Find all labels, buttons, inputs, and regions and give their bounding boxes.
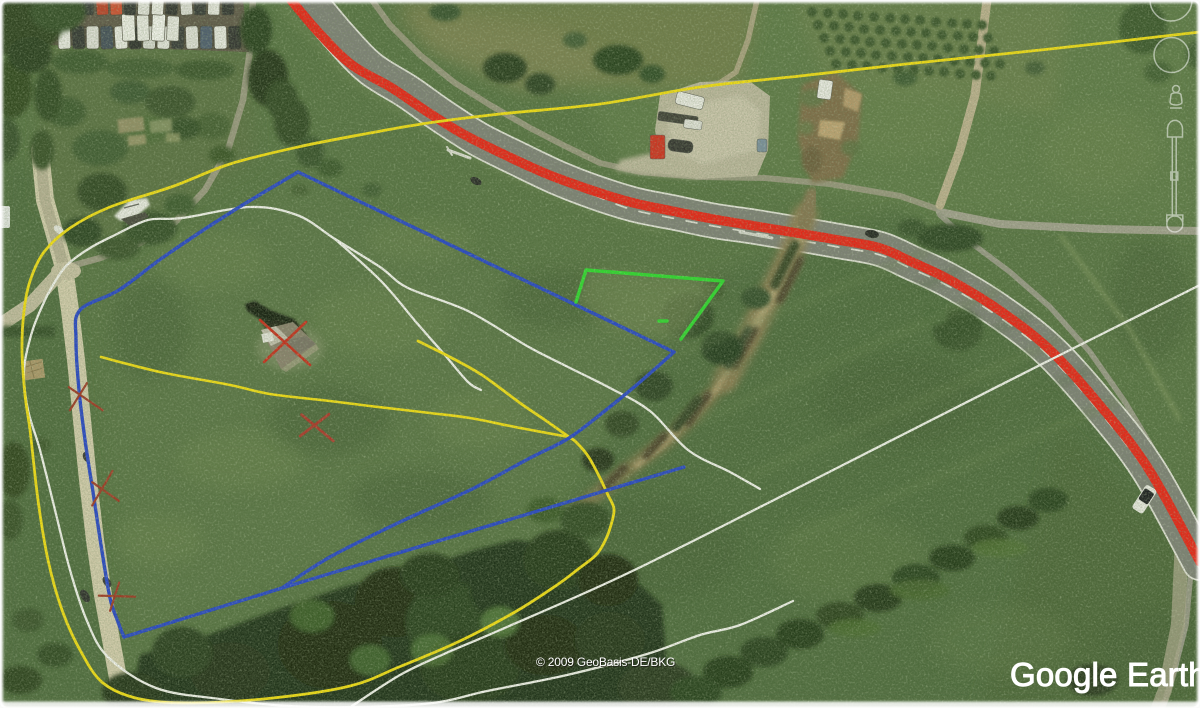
svg-text:© 2009 GeoBasis-DE/BKG: © 2009 GeoBasis-DE/BKG (536, 655, 675, 669)
svg-text:Google Earth: Google Earth (1010, 656, 1200, 693)
